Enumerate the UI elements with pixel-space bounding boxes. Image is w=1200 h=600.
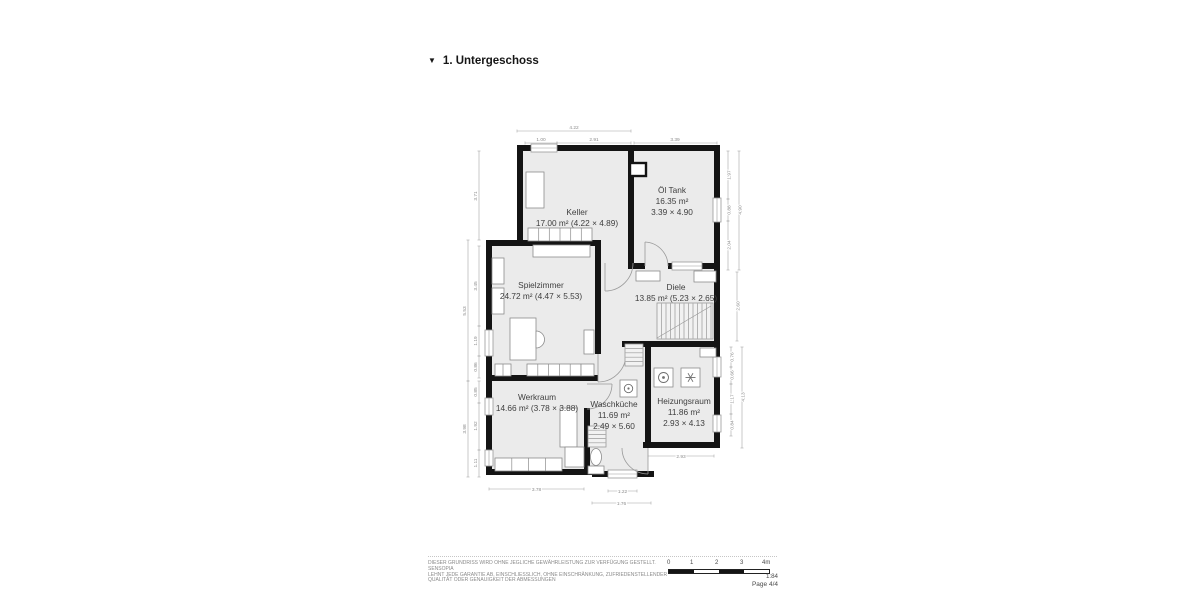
dim: 1.11: [473, 458, 479, 467]
cabinet: [584, 330, 594, 354]
room-size-waschkueche: 2.49 × 5.60: [593, 421, 635, 431]
room-details-spielzimmer: 24.72 m² (4.47 × 5.53): [500, 291, 583, 301]
scale-tick-label: 2: [715, 560, 718, 566]
boiler-icon: [654, 368, 673, 387]
room-size-heizungsraum: 2.93 × 4.13: [663, 418, 705, 428]
dim: 2.60: [736, 301, 742, 311]
window: [713, 415, 721, 432]
floor-plan-drawing: Keller 17.00 m² (4.22 × 4.89) Öl Tank 16…: [0, 0, 1200, 600]
scale-tick-label: 3: [740, 560, 743, 566]
room-size-oel-tank: 3.39 × 4.90: [651, 207, 693, 217]
wall-opening: [672, 262, 702, 270]
dim: 1.97: [727, 170, 733, 180]
washing-machine-icon: [620, 380, 637, 397]
scale-tick-label: 0: [667, 560, 670, 566]
shelf: [694, 271, 716, 282]
scale-bar: 0 1 2 3 4m 1:84 Page 4/4: [668, 560, 778, 590]
shelf-row: [528, 228, 592, 241]
room-label-spielzimmer: Spielzimmer: [518, 280, 564, 290]
dim: 0.84: [730, 420, 736, 430]
shelf-row: [495, 364, 511, 376]
shelf-row: [527, 364, 581, 376]
floor-section-header[interactable]: ▼ 1. Untergeschoss: [428, 55, 539, 67]
dim: 4.22: [569, 125, 579, 131]
room-label-waschkueche: Waschküche: [590, 399, 638, 409]
room-label-keller: Keller: [566, 207, 587, 217]
shelf: [533, 245, 590, 257]
dim: 0.76: [730, 352, 736, 362]
desk: [510, 318, 536, 360]
dim: 3.78: [532, 487, 542, 493]
dim: 4.13: [741, 392, 747, 402]
heater-fan-icon: [681, 368, 700, 387]
cabinet: [526, 172, 544, 208]
room-details-keller: 17.00 m² (4.22 × 4.89): [536, 218, 619, 228]
small-staircase: [625, 344, 643, 366]
disclaimer-line: DIESER GRUNDRISS WIRD OHNE JEGLICHE GEWÄ…: [428, 561, 680, 573]
disclaimer-text: DIESER GRUNDRISS WIRD OHNE JEGLICHE GEWÄ…: [428, 561, 680, 584]
dim: 2.93: [676, 454, 686, 460]
window: [713, 198, 721, 222]
footer-separator: [428, 556, 777, 557]
room-details-diele: 13.85 m² (5.23 × 2.65): [635, 293, 718, 303]
dim: 1.00: [536, 137, 546, 143]
dim: 1.92: [473, 421, 479, 431]
workbench: [495, 458, 562, 471]
dim: 3.98: [462, 424, 468, 434]
room-details-werkraum: 14.66 m² (3.78 × 3.88): [496, 403, 579, 413]
page-number: Page 4/4: [708, 581, 778, 588]
room-label-heizungsraum: Heizungsraum: [657, 396, 711, 406]
window: [485, 450, 493, 466]
window: [608, 470, 637, 478]
scale-tick-label: 4m: [762, 560, 770, 566]
collapse-triangle-icon: ▼: [428, 57, 436, 65]
cabinet: [492, 258, 504, 284]
vent-box: [630, 163, 646, 176]
dim: 0.66: [730, 370, 736, 380]
dim: 1.22: [618, 489, 628, 495]
room-label-oel-tank: Öl Tank: [658, 185, 687, 195]
dim: 0.86: [473, 362, 479, 372]
floor-title: 1. Untergeschoss: [443, 55, 539, 67]
main-staircase: [657, 303, 713, 339]
scale-ratio: 1:84: [708, 573, 778, 580]
window: [531, 144, 557, 152]
dim: 3.45: [473, 281, 479, 291]
dim: 3.71: [473, 191, 479, 201]
window: [485, 398, 493, 415]
room-area-oel-tank: 16.35 m²: [656, 196, 689, 206]
dim: 0.85: [473, 387, 479, 397]
floor-plan-page: ▼ 1. Untergeschoss: [0, 0, 1200, 600]
dim: 1.19: [473, 336, 479, 346]
radiator: [700, 348, 716, 357]
dim: 2.04: [727, 240, 733, 250]
workbench-corner: [565, 447, 584, 467]
room-area-heizungsraum: 11.86 m²: [668, 407, 700, 417]
window: [485, 330, 493, 356]
disclaimer-line: QUALITÄT ODER GENAUIGKEIT DER ABMESSUNGE…: [428, 578, 680, 584]
cabinet: [560, 408, 577, 447]
shelf: [581, 364, 594, 376]
dim: 3.39: [670, 137, 680, 143]
dim: 0.88: [727, 205, 733, 215]
bench: [636, 271, 660, 281]
scale-tick-label: 1: [690, 560, 693, 566]
dim: 5.53: [462, 306, 468, 316]
room-area-waschkueche: 11.69 m²: [598, 410, 630, 420]
dim: 1.76: [617, 501, 627, 507]
room-label-diele: Diele: [667, 282, 686, 292]
window: [713, 357, 721, 377]
dim: 1.17: [730, 394, 736, 404]
dim: 2.91: [589, 137, 599, 143]
dim: 4.90: [738, 205, 744, 215]
room-label-werkraum: Werkraum: [518, 392, 556, 402]
